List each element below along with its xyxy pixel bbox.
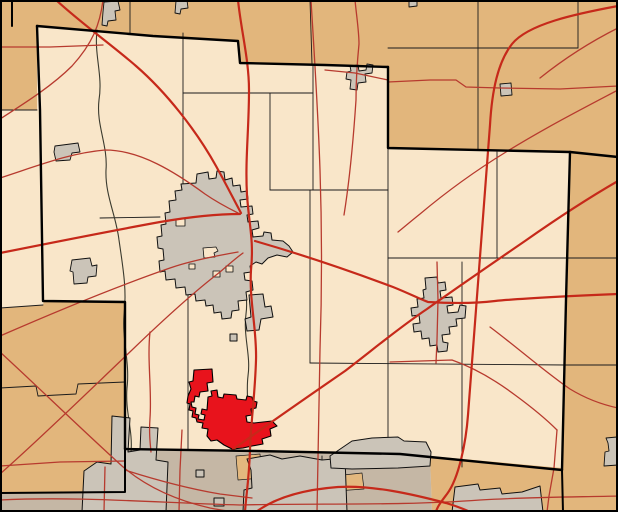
urban-area-small-village-5 <box>500 83 512 96</box>
map-canvas <box>0 0 618 512</box>
urban-area-metro-center-2 <box>196 470 204 477</box>
county-boundary-secondary-3 <box>562 470 563 512</box>
urban-enclave-hole-5 <box>189 264 195 269</box>
urban-area-city-south-fragment-2 <box>230 334 237 341</box>
urban-enclave-hole-4 <box>226 266 233 272</box>
county-locator-map <box>0 0 618 512</box>
